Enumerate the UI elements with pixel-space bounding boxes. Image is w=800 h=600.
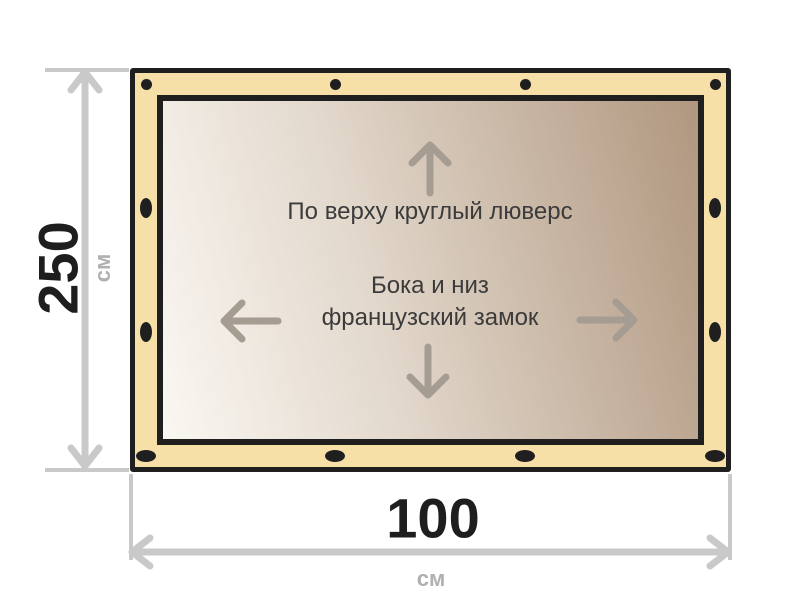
grommet-round-icon xyxy=(141,79,152,90)
grommet-oval-icon xyxy=(140,198,152,218)
arrow-up-icon xyxy=(400,135,460,197)
width-dimension-value: 100 xyxy=(386,486,479,551)
height-dimension-unit: см xyxy=(90,254,116,283)
width-dimension-unit: см xyxy=(417,566,446,592)
grommet-oval-icon xyxy=(140,322,152,342)
grommet-oval-icon xyxy=(515,450,535,462)
grommet-oval-icon xyxy=(136,450,156,462)
arrow-right-icon xyxy=(574,297,640,343)
grommet-oval-icon xyxy=(709,198,721,218)
top-note: По верху круглый люверс xyxy=(170,198,690,226)
height-dimension-value: 250 xyxy=(26,221,91,314)
grommet-oval-icon xyxy=(709,322,721,342)
grommet-oval-icon xyxy=(705,450,725,462)
grommet-oval-icon xyxy=(325,450,345,462)
grommet-round-icon xyxy=(710,79,721,90)
grommet-round-icon xyxy=(330,79,341,90)
product-size-diagram: { "banner": { "annotations": { "top_note… xyxy=(0,0,800,600)
grommet-round-icon xyxy=(520,79,531,90)
arrow-down-icon xyxy=(398,343,458,405)
